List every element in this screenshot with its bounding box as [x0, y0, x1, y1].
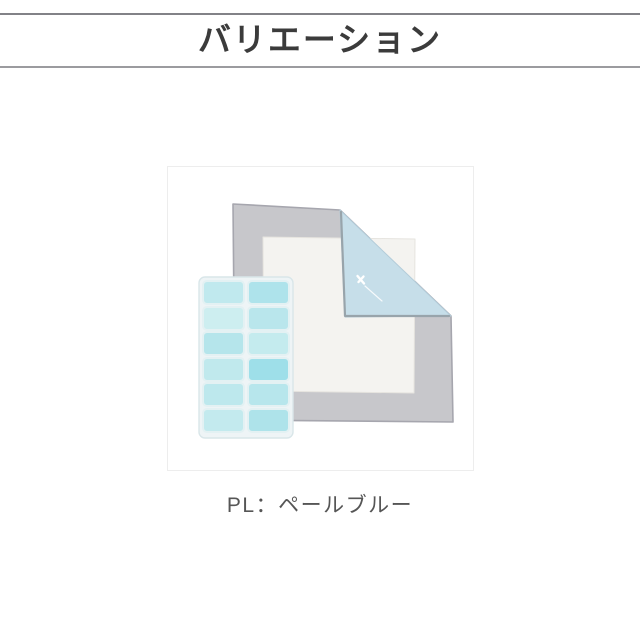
gel-cell — [248, 409, 289, 432]
gel-cell — [248, 281, 289, 304]
gel-cell — [203, 409, 244, 432]
gel-cell — [203, 281, 244, 304]
gel-cell — [248, 358, 289, 381]
product-photo — [167, 166, 474, 471]
product-illustration — [168, 167, 473, 470]
blanket-folded-corner — [340, 210, 451, 317]
page-title: バリエーション — [0, 18, 640, 62]
gel-cell — [203, 358, 244, 381]
header-rule-bottom — [0, 66, 640, 68]
gel-cell — [203, 383, 244, 406]
gel-cell — [203, 332, 244, 355]
gel-cell — [203, 307, 244, 330]
variation-section: バリエーション — [0, 0, 640, 640]
gel-cell — [248, 332, 289, 355]
variant-caption: PL：ペールブルー — [0, 492, 640, 520]
gel-cell — [248, 383, 289, 406]
header-rule-top — [0, 13, 640, 15]
gel-cell — [248, 307, 289, 330]
